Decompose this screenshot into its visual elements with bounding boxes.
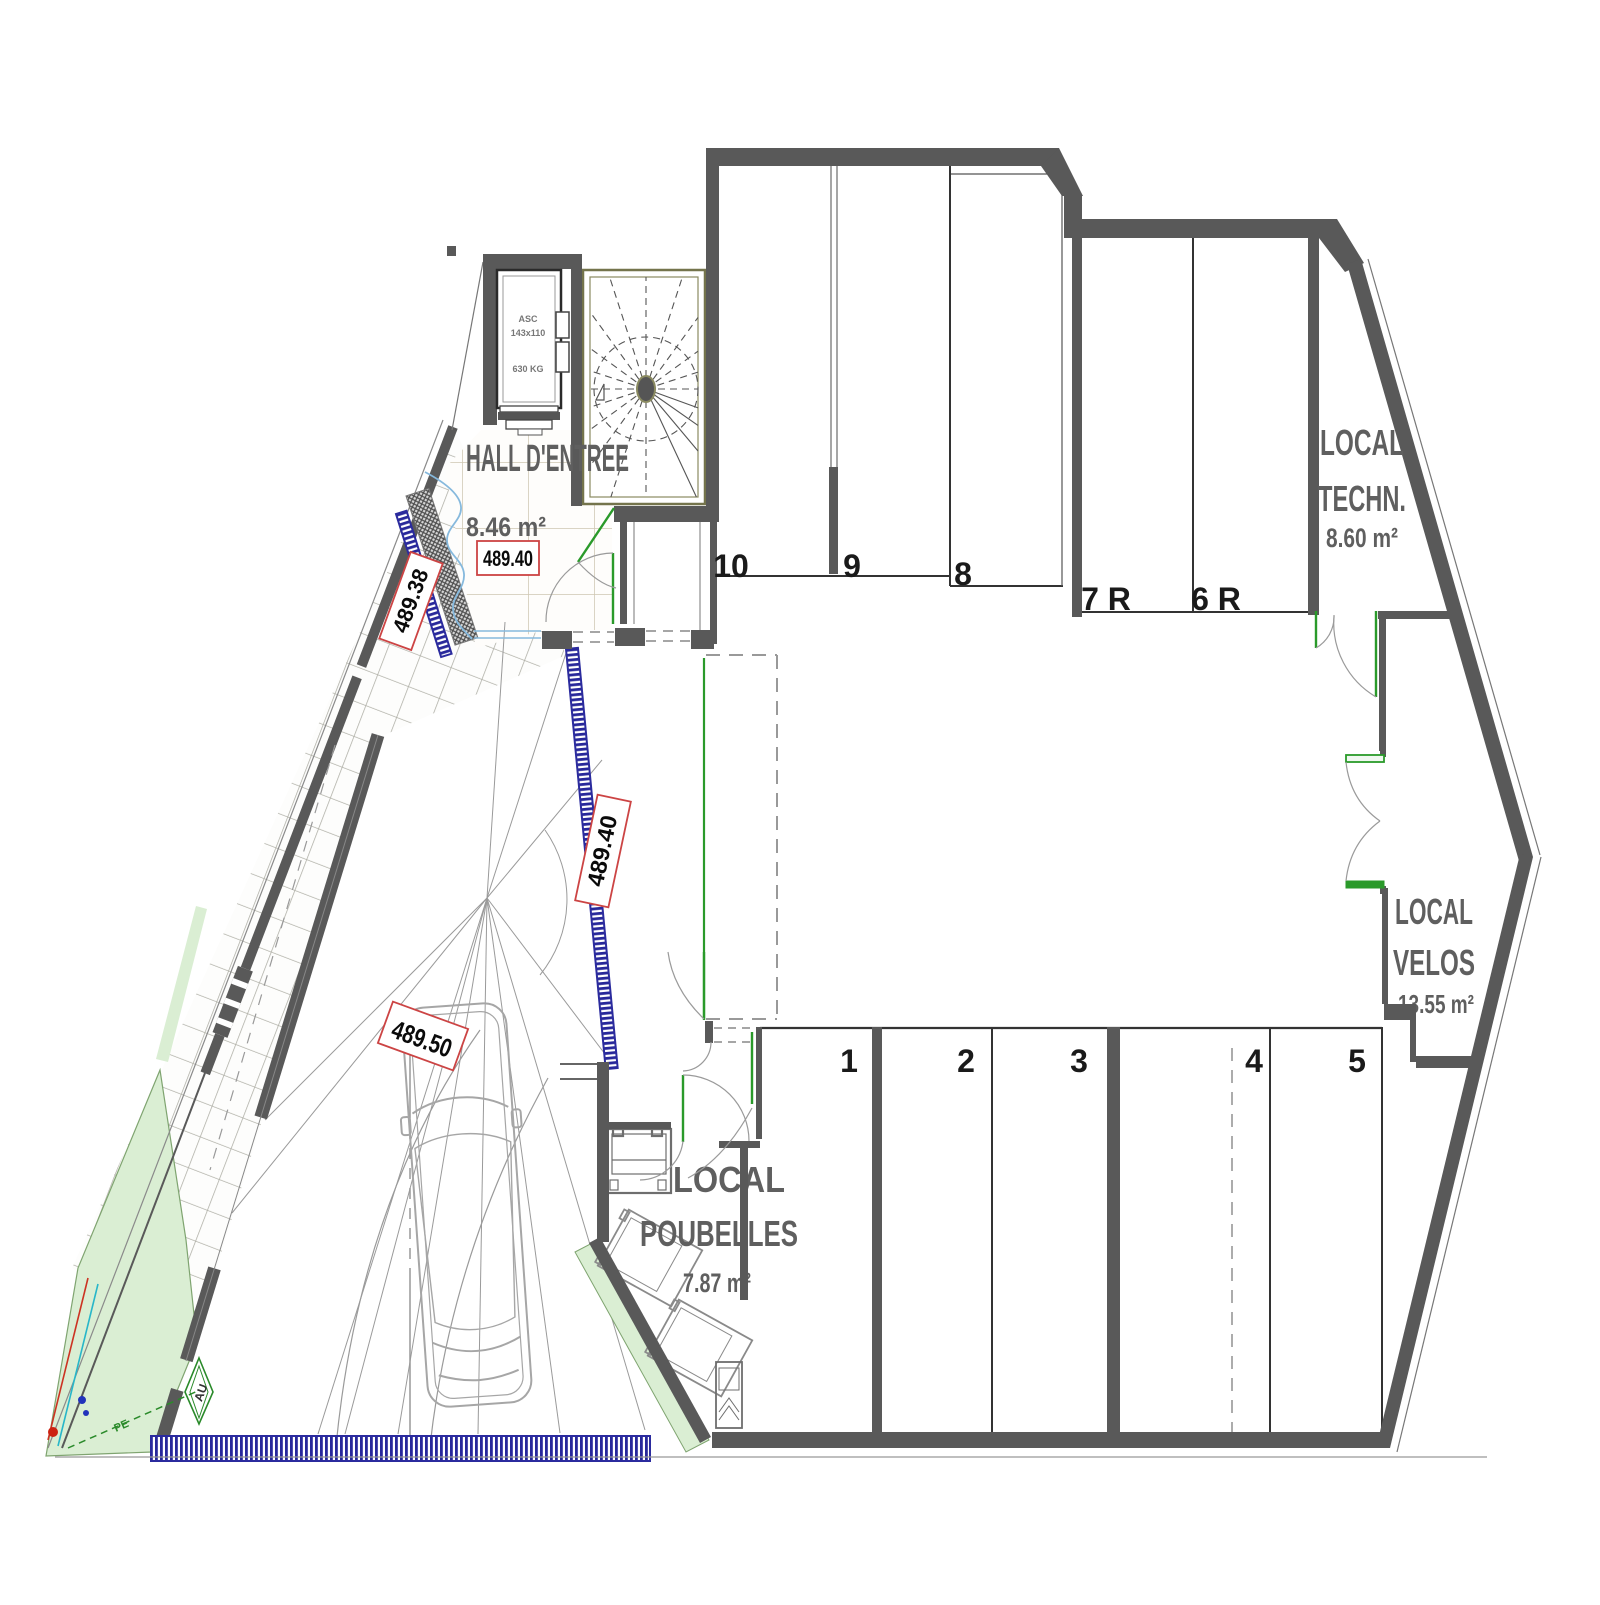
svg-text:6 R: 6 R (1191, 581, 1241, 617)
svg-text:143x110: 143x110 (511, 328, 546, 338)
svg-text:LOCAL: LOCAL (1395, 891, 1473, 932)
svg-text:LOCAL: LOCAL (673, 1159, 785, 1200)
svg-text:1: 1 (840, 1043, 858, 1079)
svg-text:8.46 m²: 8.46 m² (466, 512, 546, 542)
svg-text:9: 9 (843, 548, 861, 584)
svg-text:8: 8 (954, 556, 972, 592)
svg-text:7 R: 7 R (1081, 581, 1131, 617)
svg-text:630 KG: 630 KG (512, 364, 543, 374)
svg-text:HALL D'ENTREE: HALL D'ENTREE (466, 438, 629, 480)
svg-text:VELOS: VELOS (1393, 942, 1475, 983)
svg-text:489.40: 489.40 (483, 546, 533, 571)
svg-text:2: 2 (957, 1043, 975, 1079)
svg-text:4: 4 (1245, 1043, 1263, 1079)
svg-text:LOCAL: LOCAL (1320, 422, 1404, 463)
svg-text:POUBELLES: POUBELLES (640, 1213, 798, 1254)
svg-text:3: 3 (1070, 1043, 1088, 1079)
svg-text:ASC: ASC (518, 314, 538, 324)
svg-text:5: 5 (1348, 1043, 1366, 1079)
svg-text:10: 10 (713, 548, 749, 584)
svg-text:8.60 m²: 8.60 m² (1326, 523, 1398, 553)
svg-text:TECHN.: TECHN. (1318, 478, 1406, 519)
